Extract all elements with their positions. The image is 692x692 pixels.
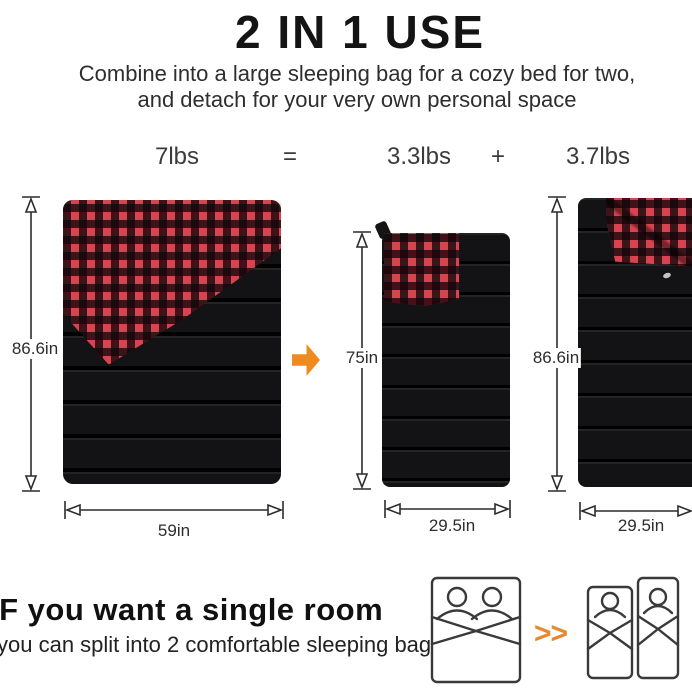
plaid-flap (63, 200, 281, 484)
single-bed-icon (638, 578, 678, 678)
single-bed-icon (588, 587, 632, 678)
subtitle: Combine into a large sleeping bag for a … (79, 61, 635, 113)
single-bag-height-arrow (548, 197, 566, 491)
split-illustration: >> (420, 570, 692, 692)
total-weight-label: 7lbs (155, 143, 199, 171)
single-sleeping-bag-folded-image (382, 233, 510, 487)
chevrons-icon: >> (534, 617, 568, 650)
footer-heading: IF you want a single room (0, 592, 383, 628)
subtitle-line-1: Combine into a large sleeping bag for a … (79, 61, 635, 87)
bag-a-weight-label: 3.3lbs (387, 143, 451, 171)
double-bag-height-label: 86.6in (10, 339, 60, 359)
double-bag-width-label: 59in (156, 521, 192, 541)
single-sleeping-bag-image (578, 198, 692, 487)
double-bed-icon (432, 578, 520, 682)
single-bag-height-label: 86.6in (531, 348, 581, 368)
double-sleeping-bag-image (63, 200, 281, 484)
single-bag-width-label: 29.5in (616, 516, 666, 536)
equals-sign: = (283, 143, 297, 171)
plaid-flap (606, 198, 692, 272)
right-arrow-icon (292, 344, 320, 376)
double-bag-width-arrow (65, 501, 283, 519)
folded-bag-height-label: 75in (344, 348, 380, 368)
plus-sign: + (491, 143, 505, 171)
bag-b-weight-label: 3.7lbs (566, 143, 630, 171)
folded-bag-width-label: 29.5in (427, 516, 477, 536)
sleeping-bag-infographic: 2 IN 1 USE Combine into a large sleeping… (0, 0, 692, 692)
fold-crease (606, 198, 692, 272)
plaid-flap (384, 233, 459, 306)
subtitle-line-2: and detach for your very own personal sp… (79, 87, 635, 113)
footer-subheading: you can split into 2 comfortable sleepin… (0, 632, 431, 658)
page-title: 2 IN 1 USE (235, 5, 485, 59)
